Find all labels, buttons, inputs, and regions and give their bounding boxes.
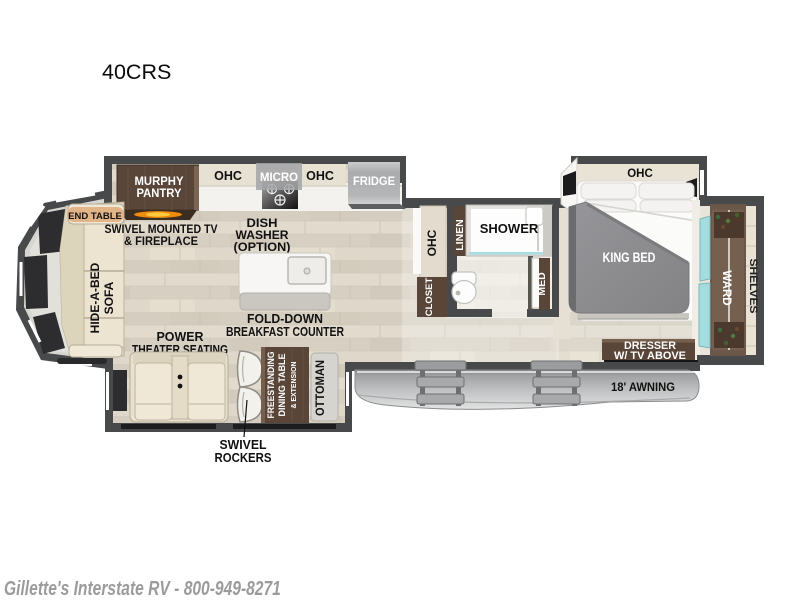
svg-text:OHC: OHC [627, 168, 653, 180]
svg-text:DINING TABLE: DINING TABLE [277, 354, 288, 417]
svg-text:OTTOMAN: OTTOMAN [315, 360, 327, 416]
svg-text:END TABLE: END TABLE [68, 211, 122, 222]
svg-text:FOLD-DOWN: FOLD-DOWN [247, 312, 323, 326]
svg-text:LINEN: LINEN [454, 219, 466, 251]
svg-text:KING BED: KING BED [603, 250, 656, 265]
svg-text:OHC: OHC [306, 169, 334, 183]
svg-text:SHOWER: SHOWER [480, 221, 539, 236]
svg-text:OHC: OHC [425, 229, 439, 256]
svg-text:SOFA: SOFA [102, 281, 116, 314]
svg-text:MED: MED [536, 272, 548, 296]
svg-text:(OPTION): (OPTION) [234, 240, 291, 254]
svg-text:SHELVES: SHELVES [747, 259, 759, 314]
svg-text:& FIREPLACE: & FIREPLACE [124, 234, 198, 248]
svg-text:& EXTENSION: & EXTENSION [289, 362, 298, 409]
svg-text:OHC: OHC [214, 169, 242, 183]
svg-text:MURPHY: MURPHY [135, 176, 184, 188]
svg-text:BREAKFAST COUNTER: BREAKFAST COUNTER [226, 325, 344, 339]
svg-text:POWER: POWER [157, 330, 204, 344]
svg-text:WARD: WARD [720, 270, 732, 305]
svg-text:CLOSET: CLOSET [424, 278, 435, 317]
svg-text:PANTRY: PANTRY [137, 188, 182, 200]
svg-text:18' AWNING: 18' AWNING [611, 380, 675, 394]
svg-text:40CRS: 40CRS [102, 60, 171, 84]
svg-text:MICRO: MICRO [260, 172, 298, 184]
svg-text:SWIVEL: SWIVEL [220, 438, 267, 452]
svg-text:FRIDGE: FRIDGE [353, 176, 395, 188]
svg-text:HIDE-A-BED: HIDE-A-BED [88, 262, 102, 333]
svg-text:ROCKERS: ROCKERS [215, 451, 272, 465]
svg-text:FREESTANDING: FREESTANDING [266, 352, 277, 419]
